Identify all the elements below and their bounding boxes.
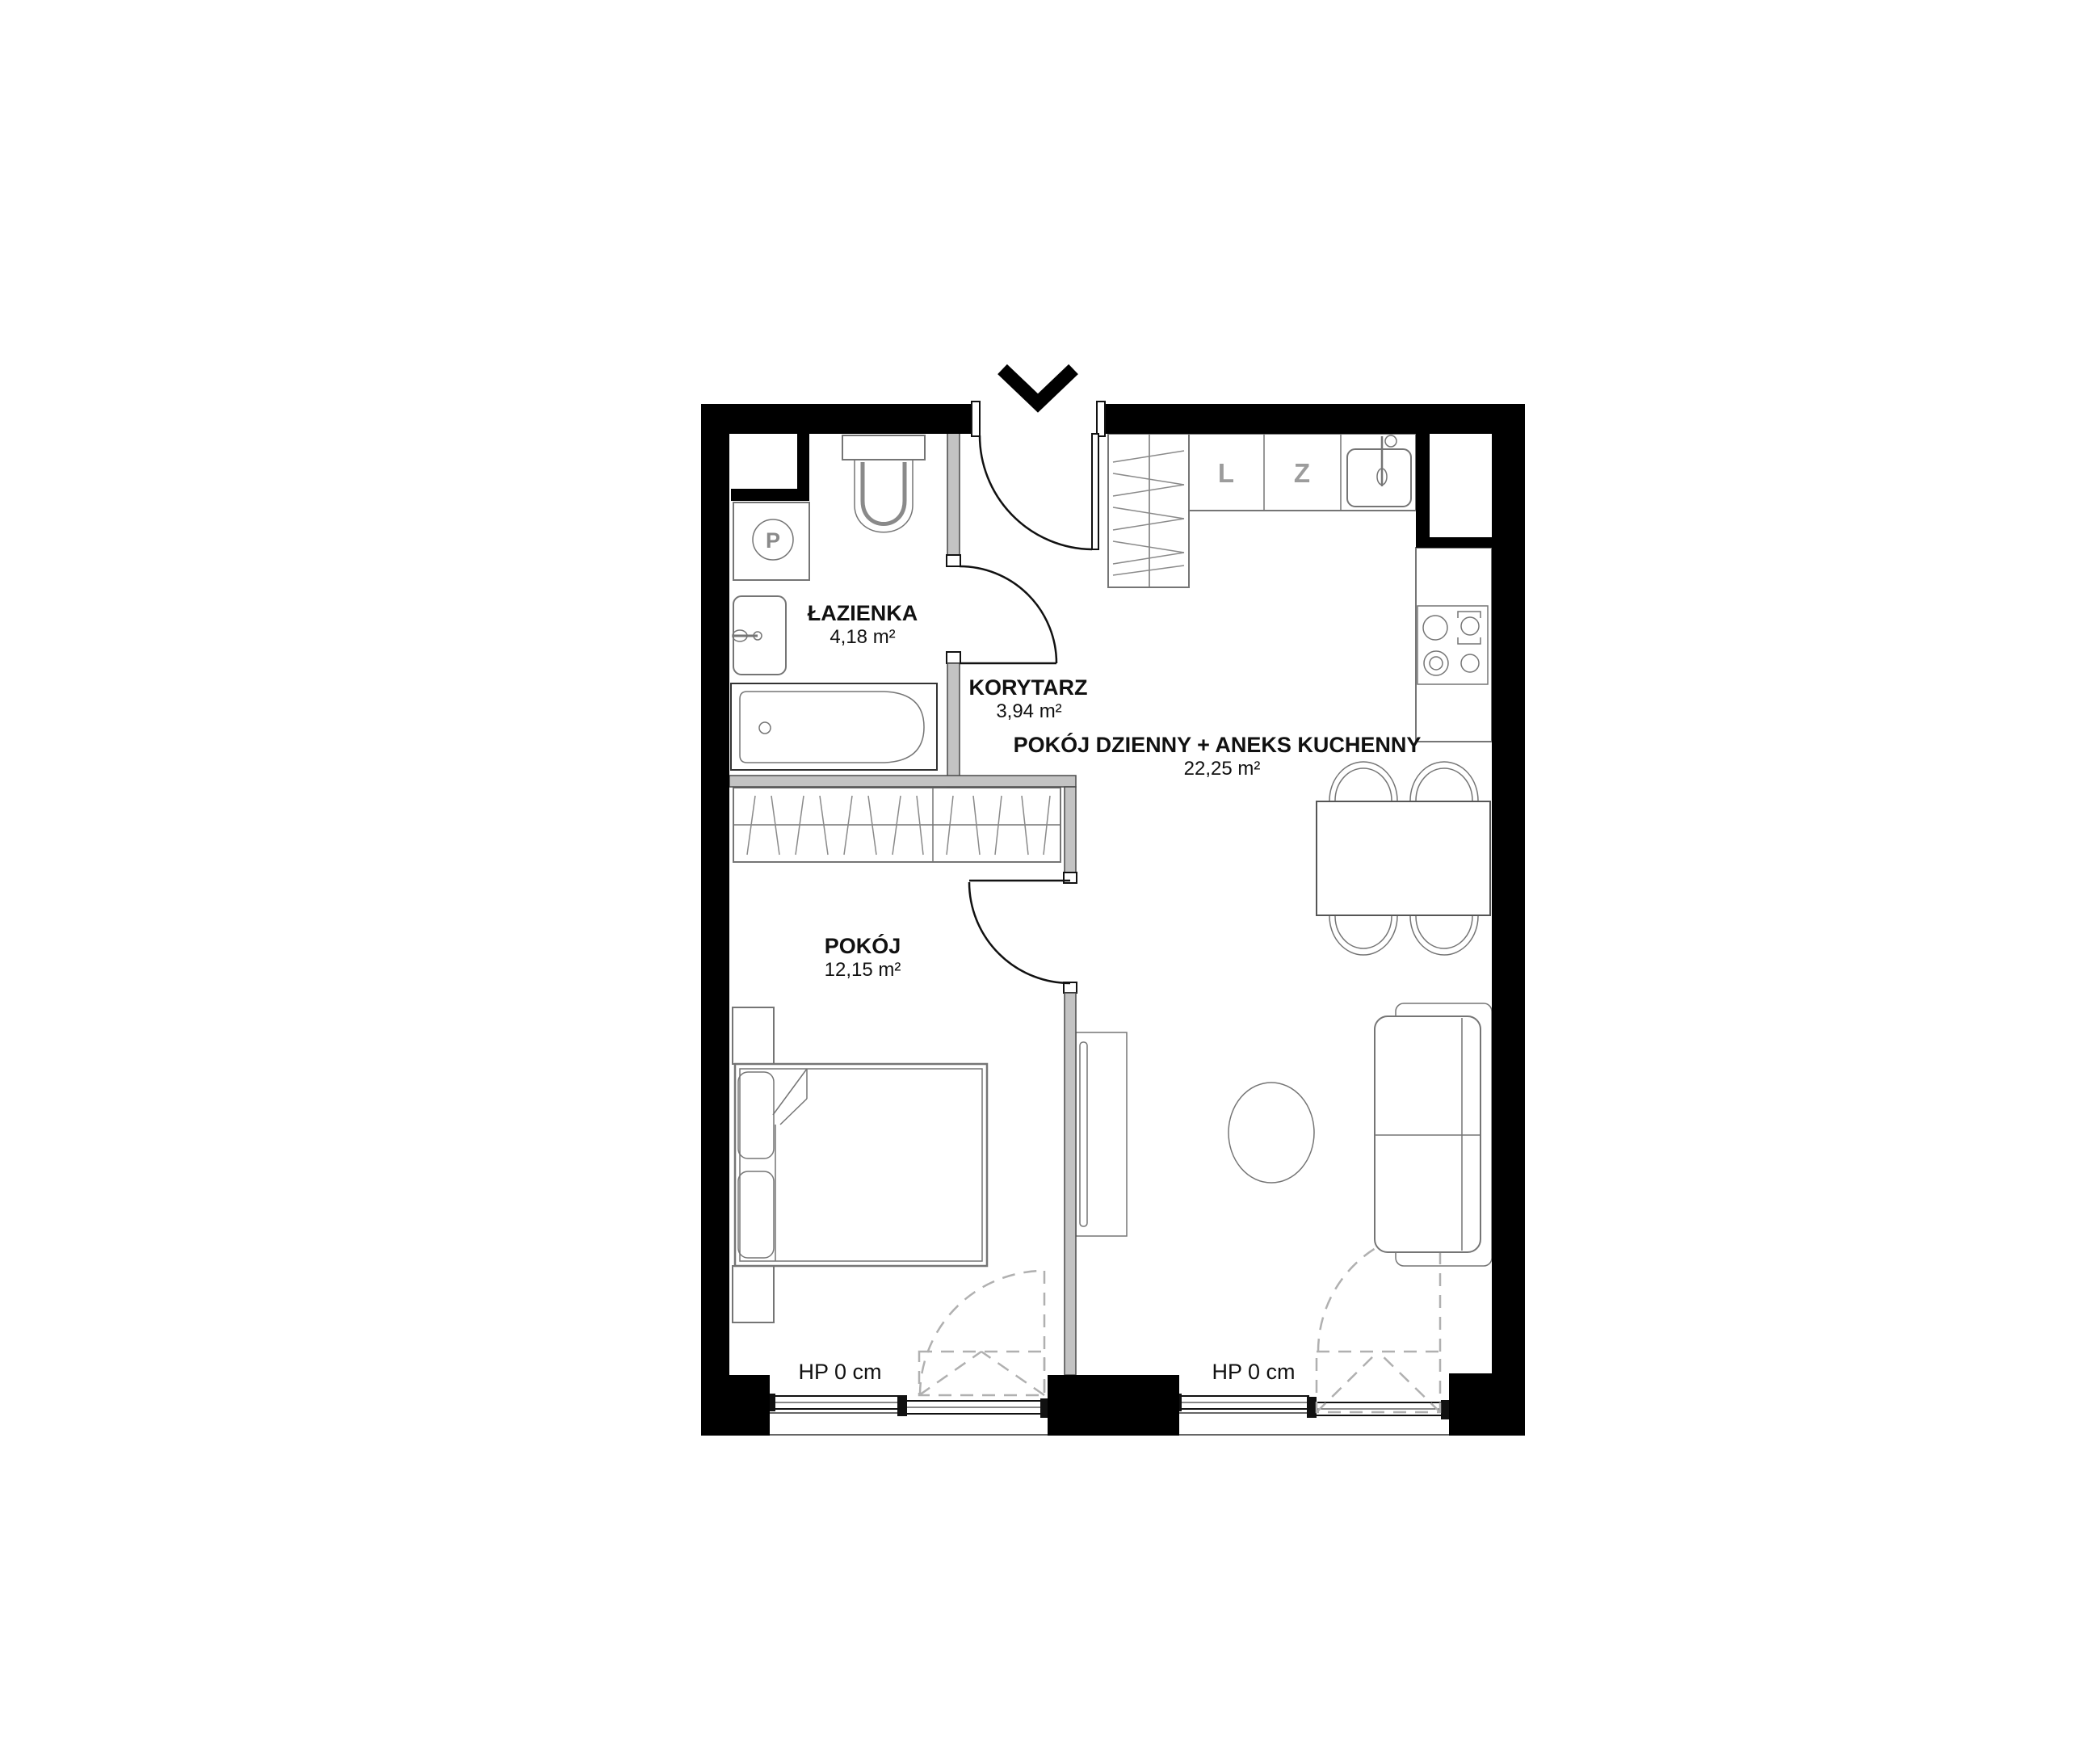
pouf bbox=[1228, 1083, 1314, 1183]
bathroom-area: 4,18 m² bbox=[829, 626, 895, 648]
toilet-tank bbox=[842, 435, 925, 460]
window-height-label-right: HP 0 cm bbox=[1212, 1360, 1295, 1384]
dishwasher-letter: Z bbox=[1294, 458, 1310, 488]
bathroom-wall-lower bbox=[947, 663, 960, 787]
corridor-area: 3,94 m² bbox=[996, 700, 1061, 722]
chair bbox=[1329, 762, 1397, 801]
shaft-niche-bathroom bbox=[731, 434, 797, 489]
wall-pier-bottom-right bbox=[1449, 1373, 1525, 1436]
living-room-furniture bbox=[1076, 762, 1492, 1266]
entrance-door-arc bbox=[980, 435, 1092, 549]
dining-table bbox=[1317, 801, 1490, 915]
living-kitchen-area: 22,25 m² bbox=[1184, 758, 1261, 780]
tilt-symbol-box bbox=[919, 1352, 1044, 1395]
corridor-label: KORYTARZ bbox=[969, 675, 1088, 700]
entrance-door-leaf bbox=[1092, 434, 1098, 549]
bedside-unit bbox=[733, 1007, 774, 1064]
bedside-unit bbox=[733, 1266, 774, 1322]
living-kitchen-label: POKÓJ DZIENNY + ANEKS KUCHENNY bbox=[1014, 732, 1422, 757]
fridge-letter: L bbox=[1218, 458, 1234, 488]
tilt-symbol-line bbox=[919, 1352, 981, 1395]
kitchen-counter-right bbox=[1416, 548, 1492, 742]
bed bbox=[735, 1064, 987, 1266]
wall-top-left bbox=[701, 404, 973, 434]
window-end-cap bbox=[1441, 1400, 1450, 1419]
bathroom-south-wall bbox=[729, 776, 1076, 787]
chair-inner bbox=[1416, 768, 1472, 801]
entrance-jamb bbox=[972, 402, 980, 436]
facade-slab-left bbox=[768, 1413, 1052, 1435]
bedroom-area: 12,15 m² bbox=[825, 959, 901, 981]
window-mullion bbox=[897, 1395, 907, 1416]
shaft-niche-right bbox=[1430, 434, 1494, 537]
entrance-arrow-icon bbox=[1002, 369, 1073, 403]
wall-pier-bottom-center bbox=[1048, 1375, 1179, 1436]
bedroom-partition-upper bbox=[1065, 787, 1076, 872]
tv-screen bbox=[1080, 1042, 1087, 1226]
tv-cabinet bbox=[1076, 1032, 1127, 1236]
wall-right bbox=[1492, 434, 1525, 1436]
bathroom-label: ŁAZIENKA bbox=[808, 601, 918, 625]
bathroom-door-arc bbox=[960, 566, 1056, 663]
wall-pier-bottom-left bbox=[701, 1375, 770, 1436]
bathroom-wall-upper bbox=[947, 432, 960, 555]
floor-plan-canvas: P L Z bbox=[0, 0, 2100, 1745]
door-swing-arc-dashed bbox=[920, 1271, 1044, 1395]
entrance-jamb bbox=[1097, 402, 1105, 436]
sofa bbox=[1375, 1016, 1480, 1252]
bedroom-label: POKÓJ bbox=[825, 933, 901, 958]
balcony-door-symbol-left bbox=[919, 1271, 1044, 1395]
tilt-symbol-line bbox=[981, 1352, 1044, 1395]
door-jamb-cap bbox=[947, 652, 960, 663]
window-height-label-left: HP 0 cm bbox=[798, 1360, 881, 1384]
chair bbox=[1410, 762, 1478, 801]
door-jamb-cap bbox=[947, 555, 960, 566]
chair bbox=[1410, 916, 1478, 955]
toilet-bowl bbox=[863, 462, 905, 524]
washer-letter: P bbox=[766, 528, 780, 553]
floor-plan-drawing: P L Z bbox=[0, 0, 2100, 1745]
bedroom-furniture bbox=[733, 788, 1060, 1322]
chair-inner bbox=[1335, 916, 1392, 948]
bedroom-partition-lower bbox=[1065, 993, 1076, 1375]
kitchen-sink bbox=[1347, 449, 1411, 507]
chair-inner bbox=[1335, 768, 1392, 801]
chair bbox=[1329, 916, 1397, 955]
balcony-door-symbol-right bbox=[1317, 1230, 1440, 1412]
window-mullion bbox=[1307, 1397, 1317, 1418]
balcony-door-symbols bbox=[919, 1230, 1440, 1412]
bedroom-door-arc bbox=[969, 882, 1070, 983]
chair-inner bbox=[1416, 916, 1472, 948]
wall-left bbox=[701, 404, 729, 1436]
